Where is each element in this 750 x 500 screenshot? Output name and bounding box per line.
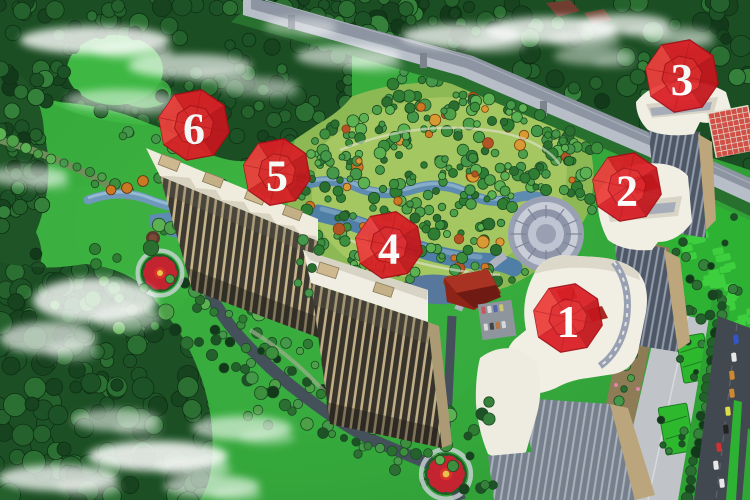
svg-text:4: 4 [378, 225, 400, 274]
svg-text:1: 1 [557, 297, 580, 347]
svg-text:3: 3 [671, 55, 694, 105]
svg-text:5: 5 [266, 152, 288, 201]
svg-text:6: 6 [183, 105, 205, 154]
svg-text:2: 2 [616, 167, 638, 216]
